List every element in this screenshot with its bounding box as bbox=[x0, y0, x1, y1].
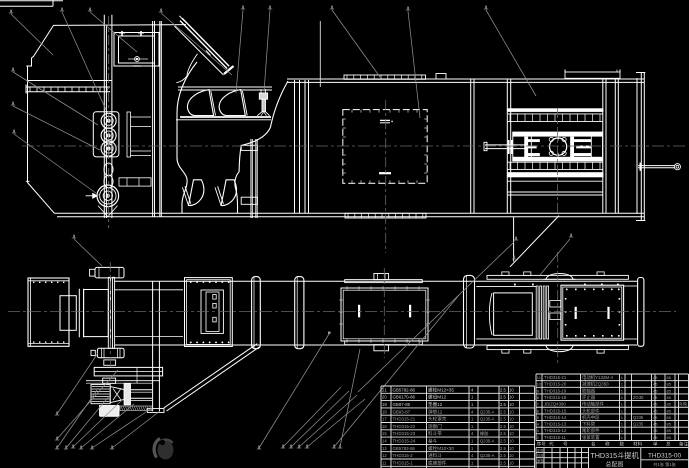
svg-text:2.5: 2.5 bbox=[500, 460, 506, 465]
svg-text:GB93-87: GB93-87 bbox=[393, 409, 411, 414]
svg-text:单: 单 bbox=[653, 441, 658, 448]
svg-text:进料斗: 进料斗 bbox=[428, 452, 442, 459]
svg-text:审核: 审核 bbox=[537, 458, 545, 463]
svg-text:THD315-23: THD315-23 bbox=[393, 431, 416, 436]
svg-text:垫圈12: 垫圈12 bbox=[428, 401, 443, 408]
svg-text:45: 45 bbox=[653, 375, 658, 380]
svg-text:头轮部件: 头轮部件 bbox=[582, 407, 600, 414]
svg-text:联轴器: 联轴器 bbox=[582, 387, 596, 394]
svg-text:85: 85 bbox=[667, 388, 672, 393]
svg-text:备注: 备注 bbox=[679, 441, 689, 448]
svg-text:2.5: 2.5 bbox=[500, 409, 506, 414]
svg-text:Q235: Q235 bbox=[633, 415, 644, 420]
svg-text:45: 45 bbox=[653, 395, 658, 400]
svg-text:18: 18 bbox=[382, 409, 387, 414]
svg-text:10: 10 bbox=[509, 417, 514, 422]
svg-text:描图: 描图 bbox=[537, 453, 545, 458]
svg-text:11: 11 bbox=[382, 460, 387, 465]
svg-text:85: 85 bbox=[667, 375, 672, 380]
svg-text:减速机ZQ350: 减速机ZQ350 bbox=[582, 381, 609, 388]
svg-text:电动机Y132M-4: 电动机Y132M-4 bbox=[582, 374, 614, 381]
svg-text:16: 16 bbox=[382, 424, 387, 429]
svg-text:Q235-A: Q235-A bbox=[480, 417, 495, 422]
svg-text:GB5783-86: GB5783-86 bbox=[393, 446, 416, 451]
svg-text:10: 10 bbox=[509, 424, 514, 429]
svg-text:总: 总 bbox=[666, 441, 671, 447]
svg-text:85: 85 bbox=[667, 422, 672, 427]
svg-text:20: 20 bbox=[382, 395, 387, 400]
svg-text:GB6170-86: GB6170-86 bbox=[393, 395, 416, 400]
svg-text:2.5: 2.5 bbox=[500, 453, 506, 458]
svg-text:45: 45 bbox=[653, 435, 658, 440]
svg-text:THD315-2: THD315-2 bbox=[393, 453, 414, 458]
svg-text:THD315-21: THD315-21 bbox=[544, 375, 567, 380]
svg-text:THD315-24: THD315-24 bbox=[393, 439, 416, 444]
svg-text:THD315-12: THD315-12 bbox=[544, 428, 567, 433]
svg-text:85: 85 bbox=[667, 395, 672, 400]
svg-text:下料管: 下料管 bbox=[582, 421, 596, 428]
svg-text:Q235-A: Q235-A bbox=[480, 409, 495, 414]
svg-text:2.5: 2.5 bbox=[500, 439, 506, 444]
svg-text:底座部件: 底座部件 bbox=[428, 459, 447, 466]
svg-text:10: 10 bbox=[509, 460, 514, 465]
svg-text:螺栓M10×30: 螺栓M10×30 bbox=[428, 445, 454, 452]
svg-text:10: 10 bbox=[509, 446, 514, 451]
svg-text:19: 19 bbox=[382, 402, 387, 407]
svg-text:螺母M12: 螺母M12 bbox=[428, 394, 447, 401]
svg-text:称: 称 bbox=[605, 441, 610, 448]
svg-text:GB5782-86: GB5782-86 bbox=[393, 387, 416, 392]
svg-text:45: 45 bbox=[653, 388, 658, 393]
svg-text:45: 45 bbox=[653, 422, 658, 427]
svg-text:2.5: 2.5 bbox=[500, 417, 506, 422]
svg-text:10: 10 bbox=[509, 387, 514, 392]
svg-text:85: 85 bbox=[667, 382, 672, 387]
svg-text:12: 12 bbox=[382, 453, 387, 458]
svg-text:2.5: 2.5 bbox=[500, 431, 506, 436]
svg-text:10: 10 bbox=[509, 431, 514, 436]
svg-text:THD315-20: THD315-20 bbox=[544, 382, 567, 387]
svg-text:THD315-00: THD315-00 bbox=[648, 453, 681, 460]
svg-text:THD315-11: THD315-11 bbox=[544, 435, 567, 440]
svg-text:21: 21 bbox=[382, 387, 387, 392]
svg-text:45: 45 bbox=[653, 382, 658, 387]
svg-text:料斗带: 料斗带 bbox=[428, 430, 442, 437]
svg-text:2.5: 2.5 bbox=[500, 395, 506, 400]
svg-text:45: 45 bbox=[653, 415, 658, 420]
svg-text:观察门: 观察门 bbox=[428, 423, 442, 430]
svg-text:45: 45 bbox=[653, 428, 658, 433]
svg-text:85: 85 bbox=[667, 428, 672, 433]
svg-text:逆止器: 逆止器 bbox=[582, 394, 596, 401]
svg-text:17: 17 bbox=[382, 417, 387, 422]
svg-text:THD315-18: THD315-18 bbox=[544, 395, 567, 400]
svg-text:THD315-13: THD315-13 bbox=[544, 422, 567, 427]
svg-text:传动轴部件: 传动轴部件 bbox=[582, 401, 605, 408]
svg-text:张紧装置: 张紧装置 bbox=[582, 434, 600, 441]
svg-text:制图: 制图 bbox=[537, 448, 545, 453]
svg-text:代: 代 bbox=[549, 441, 554, 448]
svg-text:45: 45 bbox=[653, 408, 658, 413]
svg-text:2.5: 2.5 bbox=[500, 387, 506, 392]
svg-text:共1张 第1张: 共1张 第1张 bbox=[653, 461, 676, 468]
svg-text:10: 10 bbox=[537, 382, 542, 387]
svg-text:10: 10 bbox=[509, 395, 514, 400]
svg-text:14: 14 bbox=[382, 439, 387, 444]
svg-text:THD315-1: THD315-1 bbox=[393, 460, 414, 465]
svg-text:85: 85 bbox=[667, 408, 672, 413]
svg-text:2.5: 2.5 bbox=[500, 402, 506, 407]
svg-text:85: 85 bbox=[667, 402, 672, 407]
svg-text:Q235-A: Q235-A bbox=[480, 453, 495, 458]
svg-text:头轮罩壳: 头轮罩壳 bbox=[428, 416, 447, 423]
svg-text:THD315斗提机: THD315斗提机 bbox=[590, 451, 639, 460]
svg-text:JB/ZQ4390: JB/ZQ4390 bbox=[544, 402, 566, 407]
svg-text:85: 85 bbox=[667, 435, 672, 440]
svg-text:数: 数 bbox=[620, 441, 625, 448]
svg-text:THD315-14: THD315-14 bbox=[544, 415, 567, 420]
svg-text:2.5: 2.5 bbox=[500, 446, 506, 451]
svg-text:THD315-15: THD315-15 bbox=[544, 408, 567, 413]
svg-text:THD315-21: THD315-21 bbox=[393, 417, 416, 422]
svg-text:材料: 材料 bbox=[633, 441, 643, 448]
svg-text:外购: 外购 bbox=[679, 401, 687, 407]
svg-text:45: 45 bbox=[653, 402, 658, 407]
svg-text:85: 85 bbox=[667, 415, 672, 420]
svg-text:Q235: Q235 bbox=[633, 422, 644, 427]
svg-text:Q235-A: Q235-A bbox=[480, 439, 495, 444]
svg-text:THD315-22: THD315-22 bbox=[393, 424, 416, 429]
svg-text:10: 10 bbox=[509, 409, 514, 414]
svg-text:橡胶: 橡胶 bbox=[480, 430, 488, 437]
svg-text:螺栓M12×35: 螺栓M12×35 bbox=[428, 386, 454, 393]
svg-text:2.5: 2.5 bbox=[500, 424, 506, 429]
svg-text:ZG35: ZG35 bbox=[633, 395, 644, 400]
svg-text:总配图: 总配图 bbox=[605, 461, 623, 468]
svg-text:10: 10 bbox=[509, 439, 514, 444]
svg-text:弹垫12: 弹垫12 bbox=[428, 408, 443, 415]
svg-text:15: 15 bbox=[382, 431, 387, 436]
svg-text:畚斗: 畚斗 bbox=[428, 438, 438, 445]
svg-text:THD315-19: THD315-19 bbox=[544, 388, 567, 393]
svg-text:名: 名 bbox=[591, 441, 596, 448]
svg-text:10: 10 bbox=[509, 453, 514, 458]
svg-text:序号: 序号 bbox=[537, 441, 547, 448]
svg-text:机壳中段: 机壳中段 bbox=[582, 414, 600, 421]
svg-text:10: 10 bbox=[509, 402, 514, 407]
svg-text:13: 13 bbox=[382, 446, 387, 451]
svg-text:GB97-85: GB97-85 bbox=[393, 402, 411, 407]
svg-text:尾轮部件: 尾轮部件 bbox=[582, 427, 600, 434]
